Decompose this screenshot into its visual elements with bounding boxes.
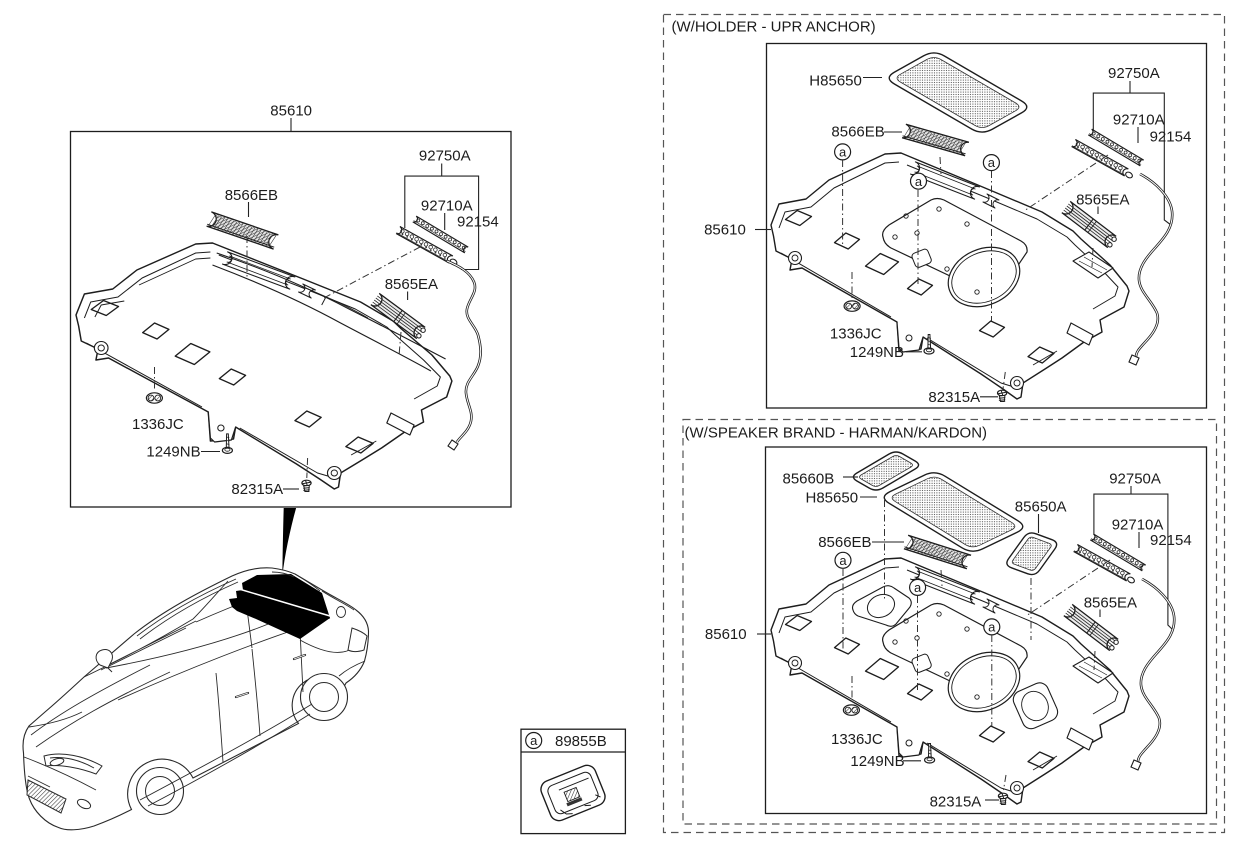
svg-text:a: a: [988, 155, 996, 170]
svg-text:92710A: 92710A: [1113, 111, 1165, 128]
svg-text:8565EA: 8565EA: [385, 276, 438, 293]
svg-text:92154: 92154: [1150, 129, 1192, 146]
svg-text:82315A: 82315A: [930, 794, 982, 811]
svg-text:85660B: 85660B: [783, 470, 835, 487]
svg-text:82315A: 82315A: [928, 389, 980, 406]
svg-text:H85650: H85650: [806, 489, 859, 506]
svg-text:89855B: 89855B: [555, 733, 607, 750]
svg-text:8566EB: 8566EB: [818, 534, 871, 551]
svg-text:8565EA: 8565EA: [1084, 595, 1137, 612]
svg-text:1336JC: 1336JC: [830, 326, 882, 343]
svg-text:92750A: 92750A: [1109, 470, 1161, 487]
svg-text:8566EB: 8566EB: [225, 187, 278, 204]
svg-text:(W/HOLDER - UPR ANCHOR): (W/HOLDER - UPR ANCHOR): [672, 19, 876, 36]
svg-text:a: a: [839, 145, 847, 160]
svg-text:85610: 85610: [705, 626, 747, 643]
svg-text:92710A: 92710A: [1112, 516, 1164, 533]
svg-text:85610: 85610: [704, 222, 746, 239]
svg-text:(W/SPEAKER BRAND - HARMAN/KARD: (W/SPEAKER BRAND - HARMAN/KARDON): [685, 424, 988, 441]
svg-text:92154: 92154: [457, 214, 499, 231]
svg-text:H85650: H85650: [809, 72, 862, 89]
svg-text:92750A: 92750A: [419, 148, 471, 165]
svg-text:1336JC: 1336JC: [132, 416, 184, 433]
svg-text:85610: 85610: [270, 103, 312, 120]
svg-text:a: a: [839, 553, 847, 568]
svg-text:92710A: 92710A: [421, 198, 473, 215]
svg-text:a: a: [530, 733, 538, 748]
svg-text:1249NB: 1249NB: [850, 753, 904, 770]
svg-text:1249NB: 1249NB: [850, 344, 904, 361]
svg-text:1336JC: 1336JC: [831, 731, 883, 748]
svg-text:1249NB: 1249NB: [146, 444, 200, 461]
svg-text:a: a: [988, 620, 996, 635]
svg-text:92154: 92154: [1150, 532, 1192, 549]
svg-text:85650A: 85650A: [1015, 499, 1067, 516]
svg-text:a: a: [915, 174, 923, 189]
svg-text:92750A: 92750A: [1108, 65, 1160, 82]
svg-text:8566EB: 8566EB: [831, 124, 884, 141]
svg-text:82315A: 82315A: [231, 481, 283, 498]
svg-text:a: a: [914, 580, 922, 595]
svg-text:8565EA: 8565EA: [1076, 191, 1129, 208]
